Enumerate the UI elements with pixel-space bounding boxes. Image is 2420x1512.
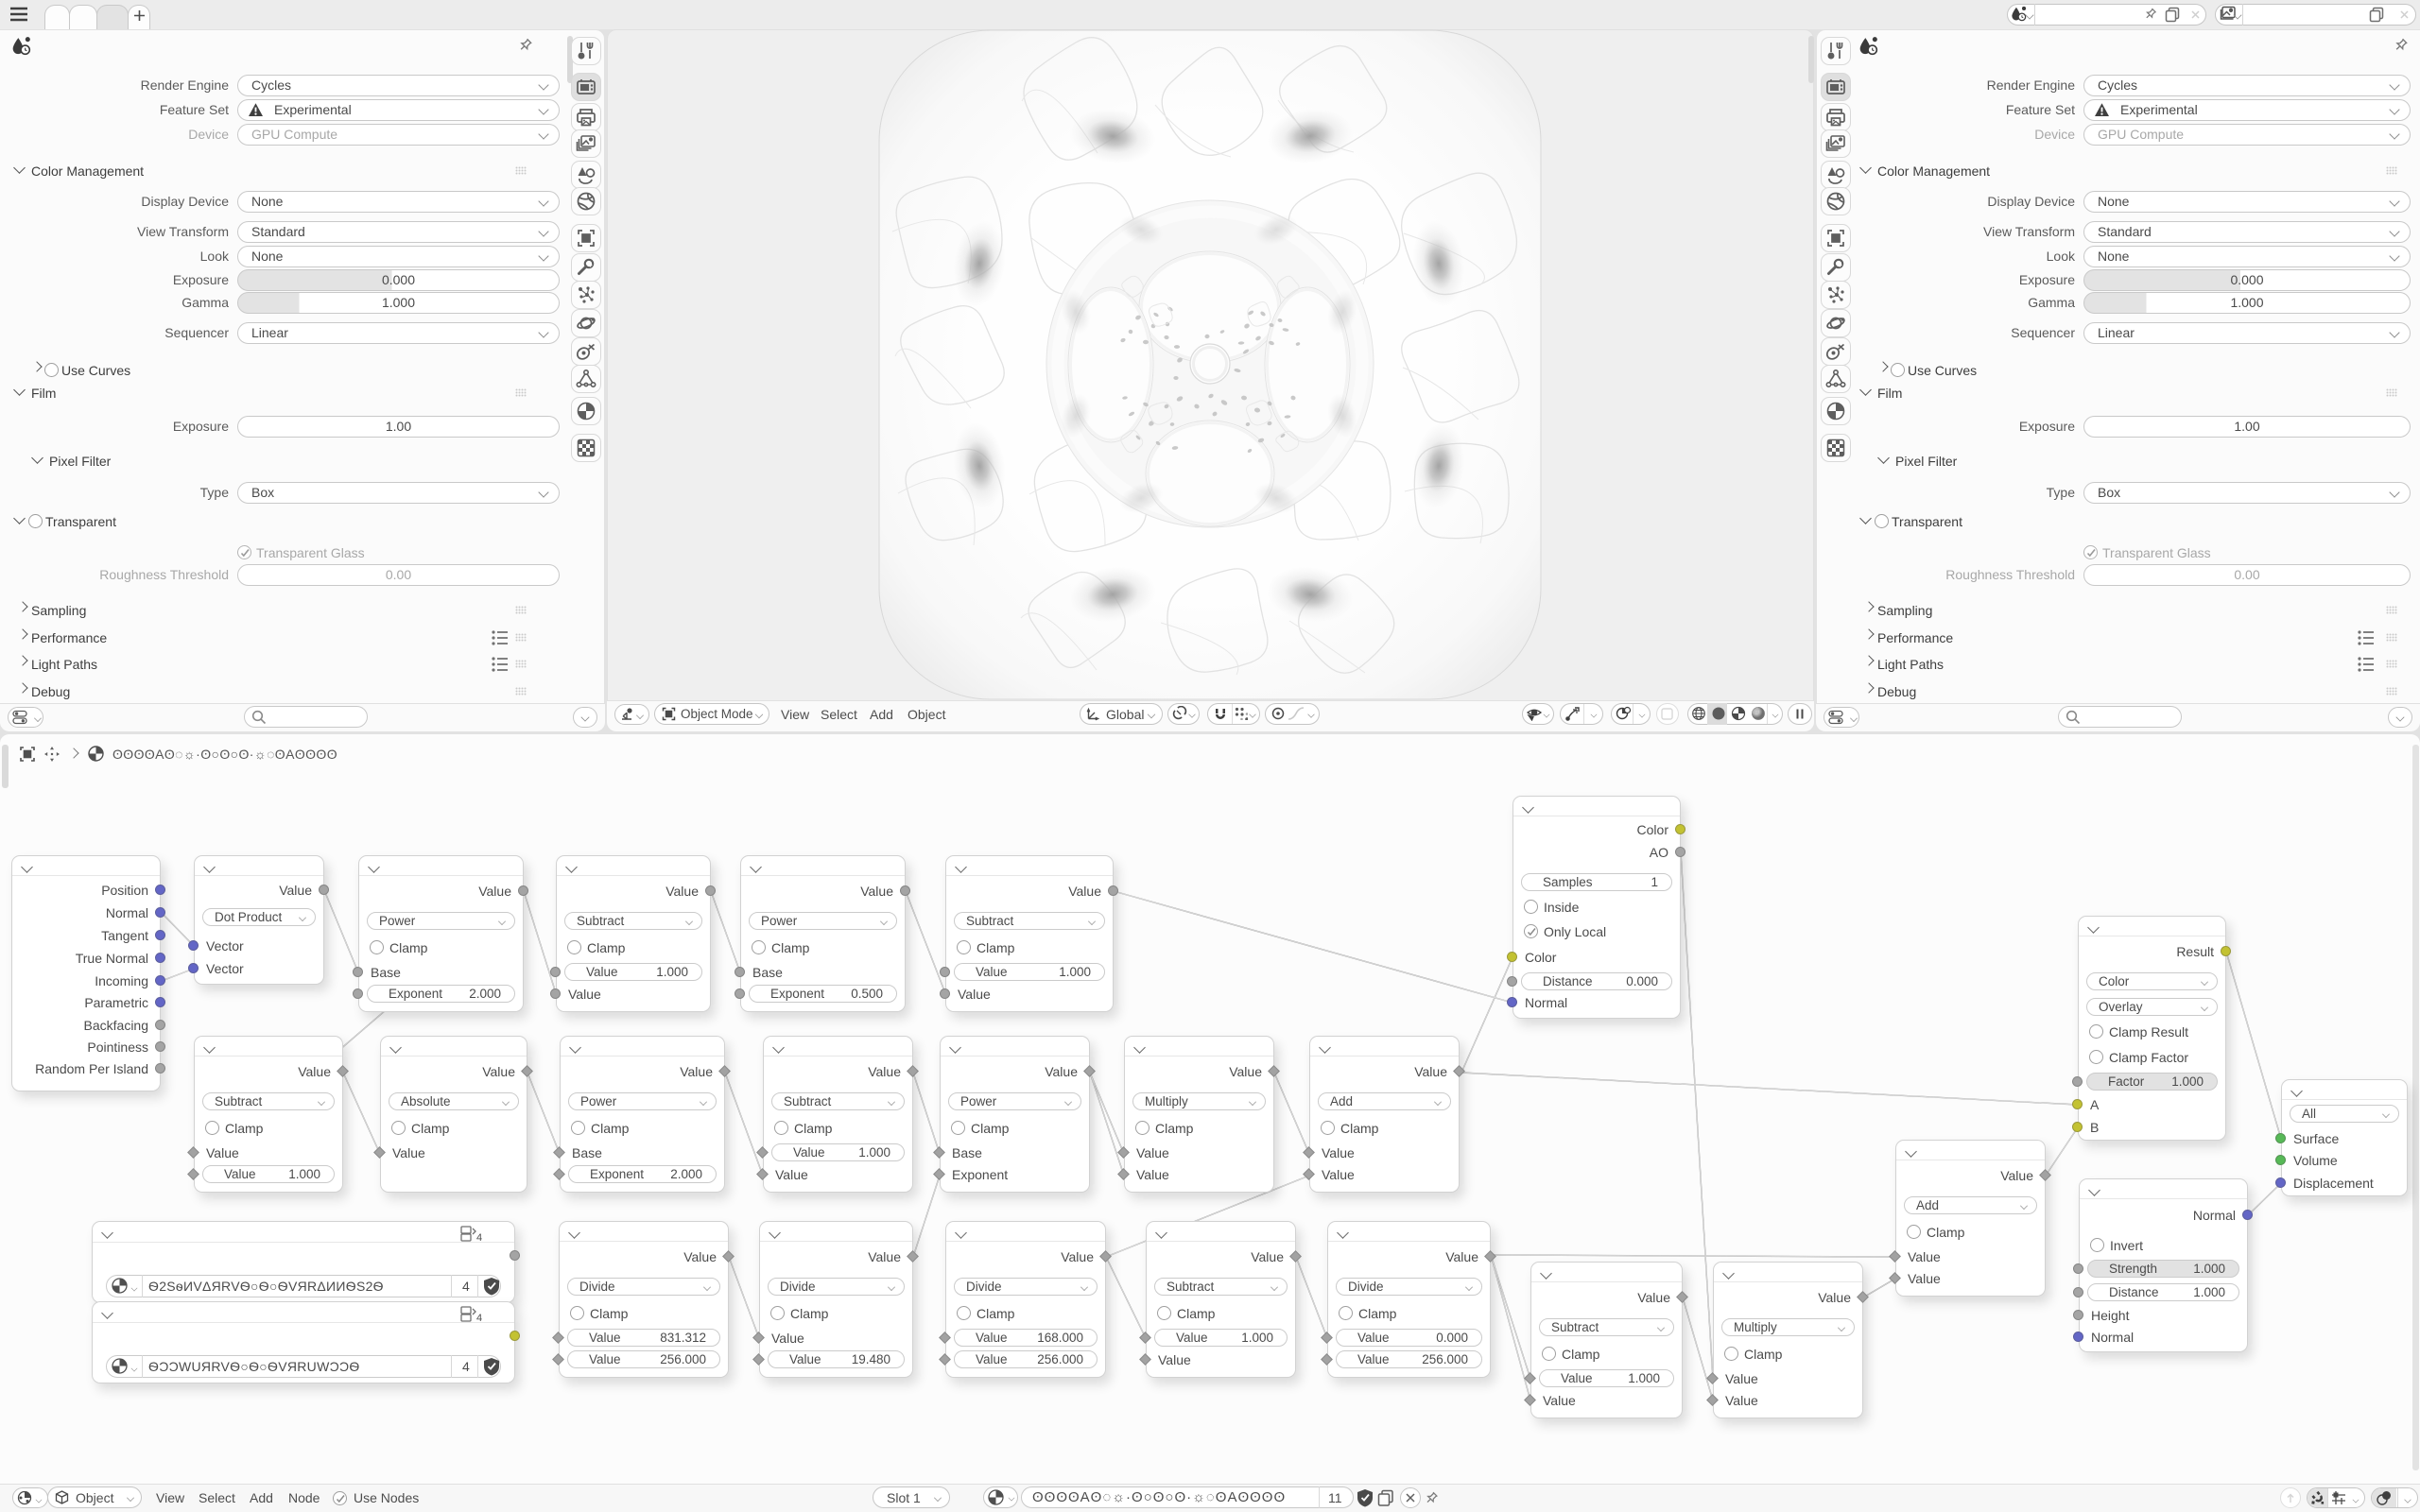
svg-text:4: 4 — [476, 1232, 482, 1243]
svg-text:4: 4 — [476, 1313, 482, 1323]
